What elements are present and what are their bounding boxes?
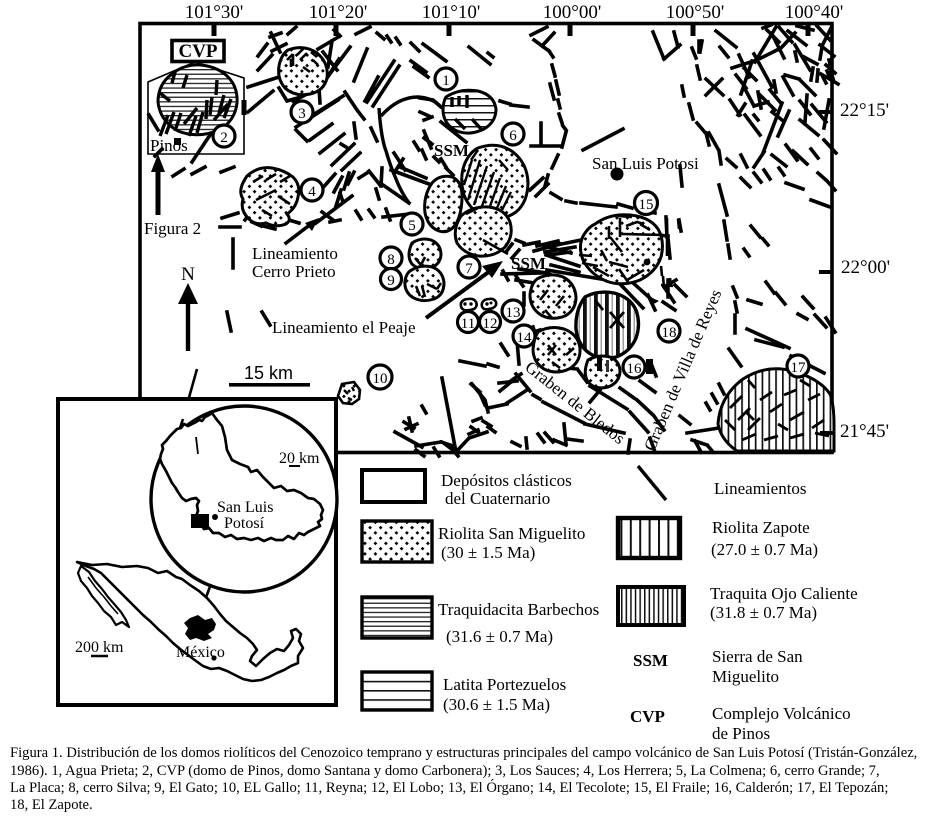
svg-text:8: 8 <box>387 252 395 268</box>
svg-text:14: 14 <box>517 330 533 346</box>
svg-text:101°10': 101°10' <box>422 2 481 23</box>
svg-text:21°45': 21°45' <box>840 421 889 442</box>
svg-text:18, El Zapote.: 18, El Zapote. <box>10 797 93 813</box>
svg-text:11: 11 <box>461 316 475 332</box>
svg-text:17: 17 <box>791 360 807 376</box>
svg-text:18: 18 <box>662 325 677 341</box>
svg-text:100°00': 100°00' <box>543 2 602 23</box>
svg-text:13: 13 <box>506 305 521 321</box>
svg-text:La Placa; 8, cerro Silva; 9, E: La Placa; 8, cerro Silva; 9, El Gato; 10… <box>10 779 888 796</box>
svg-text:Figura 1. Distribución de los: Figura 1. Distribución de los domos riol… <box>10 745 917 761</box>
svg-text:Riolita San Miguelito: Riolita San Miguelito <box>438 524 585 543</box>
svg-text:San Luis Potosi: San Luis Potosi <box>592 154 699 173</box>
svg-text:(30.6 ± 1.5 Ma): (30.6 ± 1.5 Ma) <box>443 695 550 714</box>
svg-text:Figura 2: Figura 2 <box>144 219 201 238</box>
svg-text:4: 4 <box>308 184 316 200</box>
svg-text:6: 6 <box>509 128 517 144</box>
svg-text:9: 9 <box>387 273 395 289</box>
svg-text:(31.6 ± 0.7 Ma): (31.6 ± 0.7 Ma) <box>446 627 553 646</box>
svg-text:SSM: SSM <box>633 651 668 670</box>
svg-text:Lineamiento el Peaje: Lineamiento el Peaje <box>272 318 416 337</box>
svg-text:Riolita Zapote: Riolita Zapote <box>712 518 810 537</box>
svg-text:CVP: CVP <box>630 707 665 726</box>
svg-text:5: 5 <box>408 218 416 234</box>
svg-text:100°50': 100°50' <box>666 2 725 23</box>
svg-text:SSM: SSM <box>511 254 546 273</box>
svg-text:3: 3 <box>298 106 306 122</box>
svg-text:Miguelito: Miguelito <box>712 667 779 686</box>
svg-text:Lineamiento: Lineamiento <box>252 244 338 263</box>
svg-text:200 km: 200 km <box>75 639 124 656</box>
svg-text:101°20': 101°20' <box>309 2 368 23</box>
svg-text:Potosí: Potosí <box>224 515 265 532</box>
svg-text:Latita Portezuelos: Latita Portezuelos <box>443 675 566 694</box>
svg-text:20 km: 20 km <box>279 450 320 467</box>
svg-text:Traquita Ojo Caliente: Traquita Ojo Caliente <box>710 584 858 603</box>
svg-text:100°40': 100°40' <box>785 2 844 23</box>
svg-text:San Luis: San Luis <box>217 499 273 516</box>
svg-text:15 km: 15 km <box>244 363 293 383</box>
svg-text:2: 2 <box>220 130 228 146</box>
svg-text:CVP: CVP <box>178 41 217 62</box>
svg-text:México: México <box>176 644 225 661</box>
svg-text:de Pinos: de Pinos <box>712 724 770 743</box>
svg-text:Sierra de San: Sierra de San <box>712 647 803 666</box>
svg-text:Complejo Volcánico: Complejo Volcánico <box>712 704 851 723</box>
svg-text:1: 1 <box>442 73 450 89</box>
svg-text:Depósitos clásticos: Depósitos clásticos <box>441 471 572 490</box>
svg-text:12: 12 <box>483 316 498 332</box>
svg-text:16: 16 <box>627 361 643 377</box>
svg-text:del Cuaternario: del Cuaternario <box>445 489 550 508</box>
svg-text:101°30': 101°30' <box>185 2 244 23</box>
svg-text:N: N <box>181 264 195 285</box>
svg-text:Lineamientos: Lineamientos <box>714 479 807 498</box>
svg-text:1986). 1, Agua Prieta; 2, CVP: 1986). 1, Agua Prieta; 2, CVP (domo de P… <box>10 763 880 779</box>
svg-text:(27.0 ± 0.7 Ma): (27.0 ± 0.7 Ma) <box>711 540 818 559</box>
svg-text:22°15': 22°15' <box>840 100 889 121</box>
svg-text:10: 10 <box>373 371 388 387</box>
svg-text:22°00': 22°00' <box>841 257 890 278</box>
svg-text:15: 15 <box>639 197 654 213</box>
svg-text:7: 7 <box>465 261 473 277</box>
svg-text:(30 ± 1.5 Ma): (30 ± 1.5 Ma) <box>441 543 535 562</box>
svg-text:SSM: SSM <box>434 141 469 160</box>
svg-text:(31.8 ± 0.7 Ma): (31.8 ± 0.7 Ma) <box>710 603 817 622</box>
svg-text:Cerro Prieto: Cerro Prieto <box>252 262 336 281</box>
svg-text:Traquidacita Barbechos: Traquidacita Barbechos <box>438 600 599 619</box>
svg-text:Pinos: Pinos <box>150 136 188 155</box>
